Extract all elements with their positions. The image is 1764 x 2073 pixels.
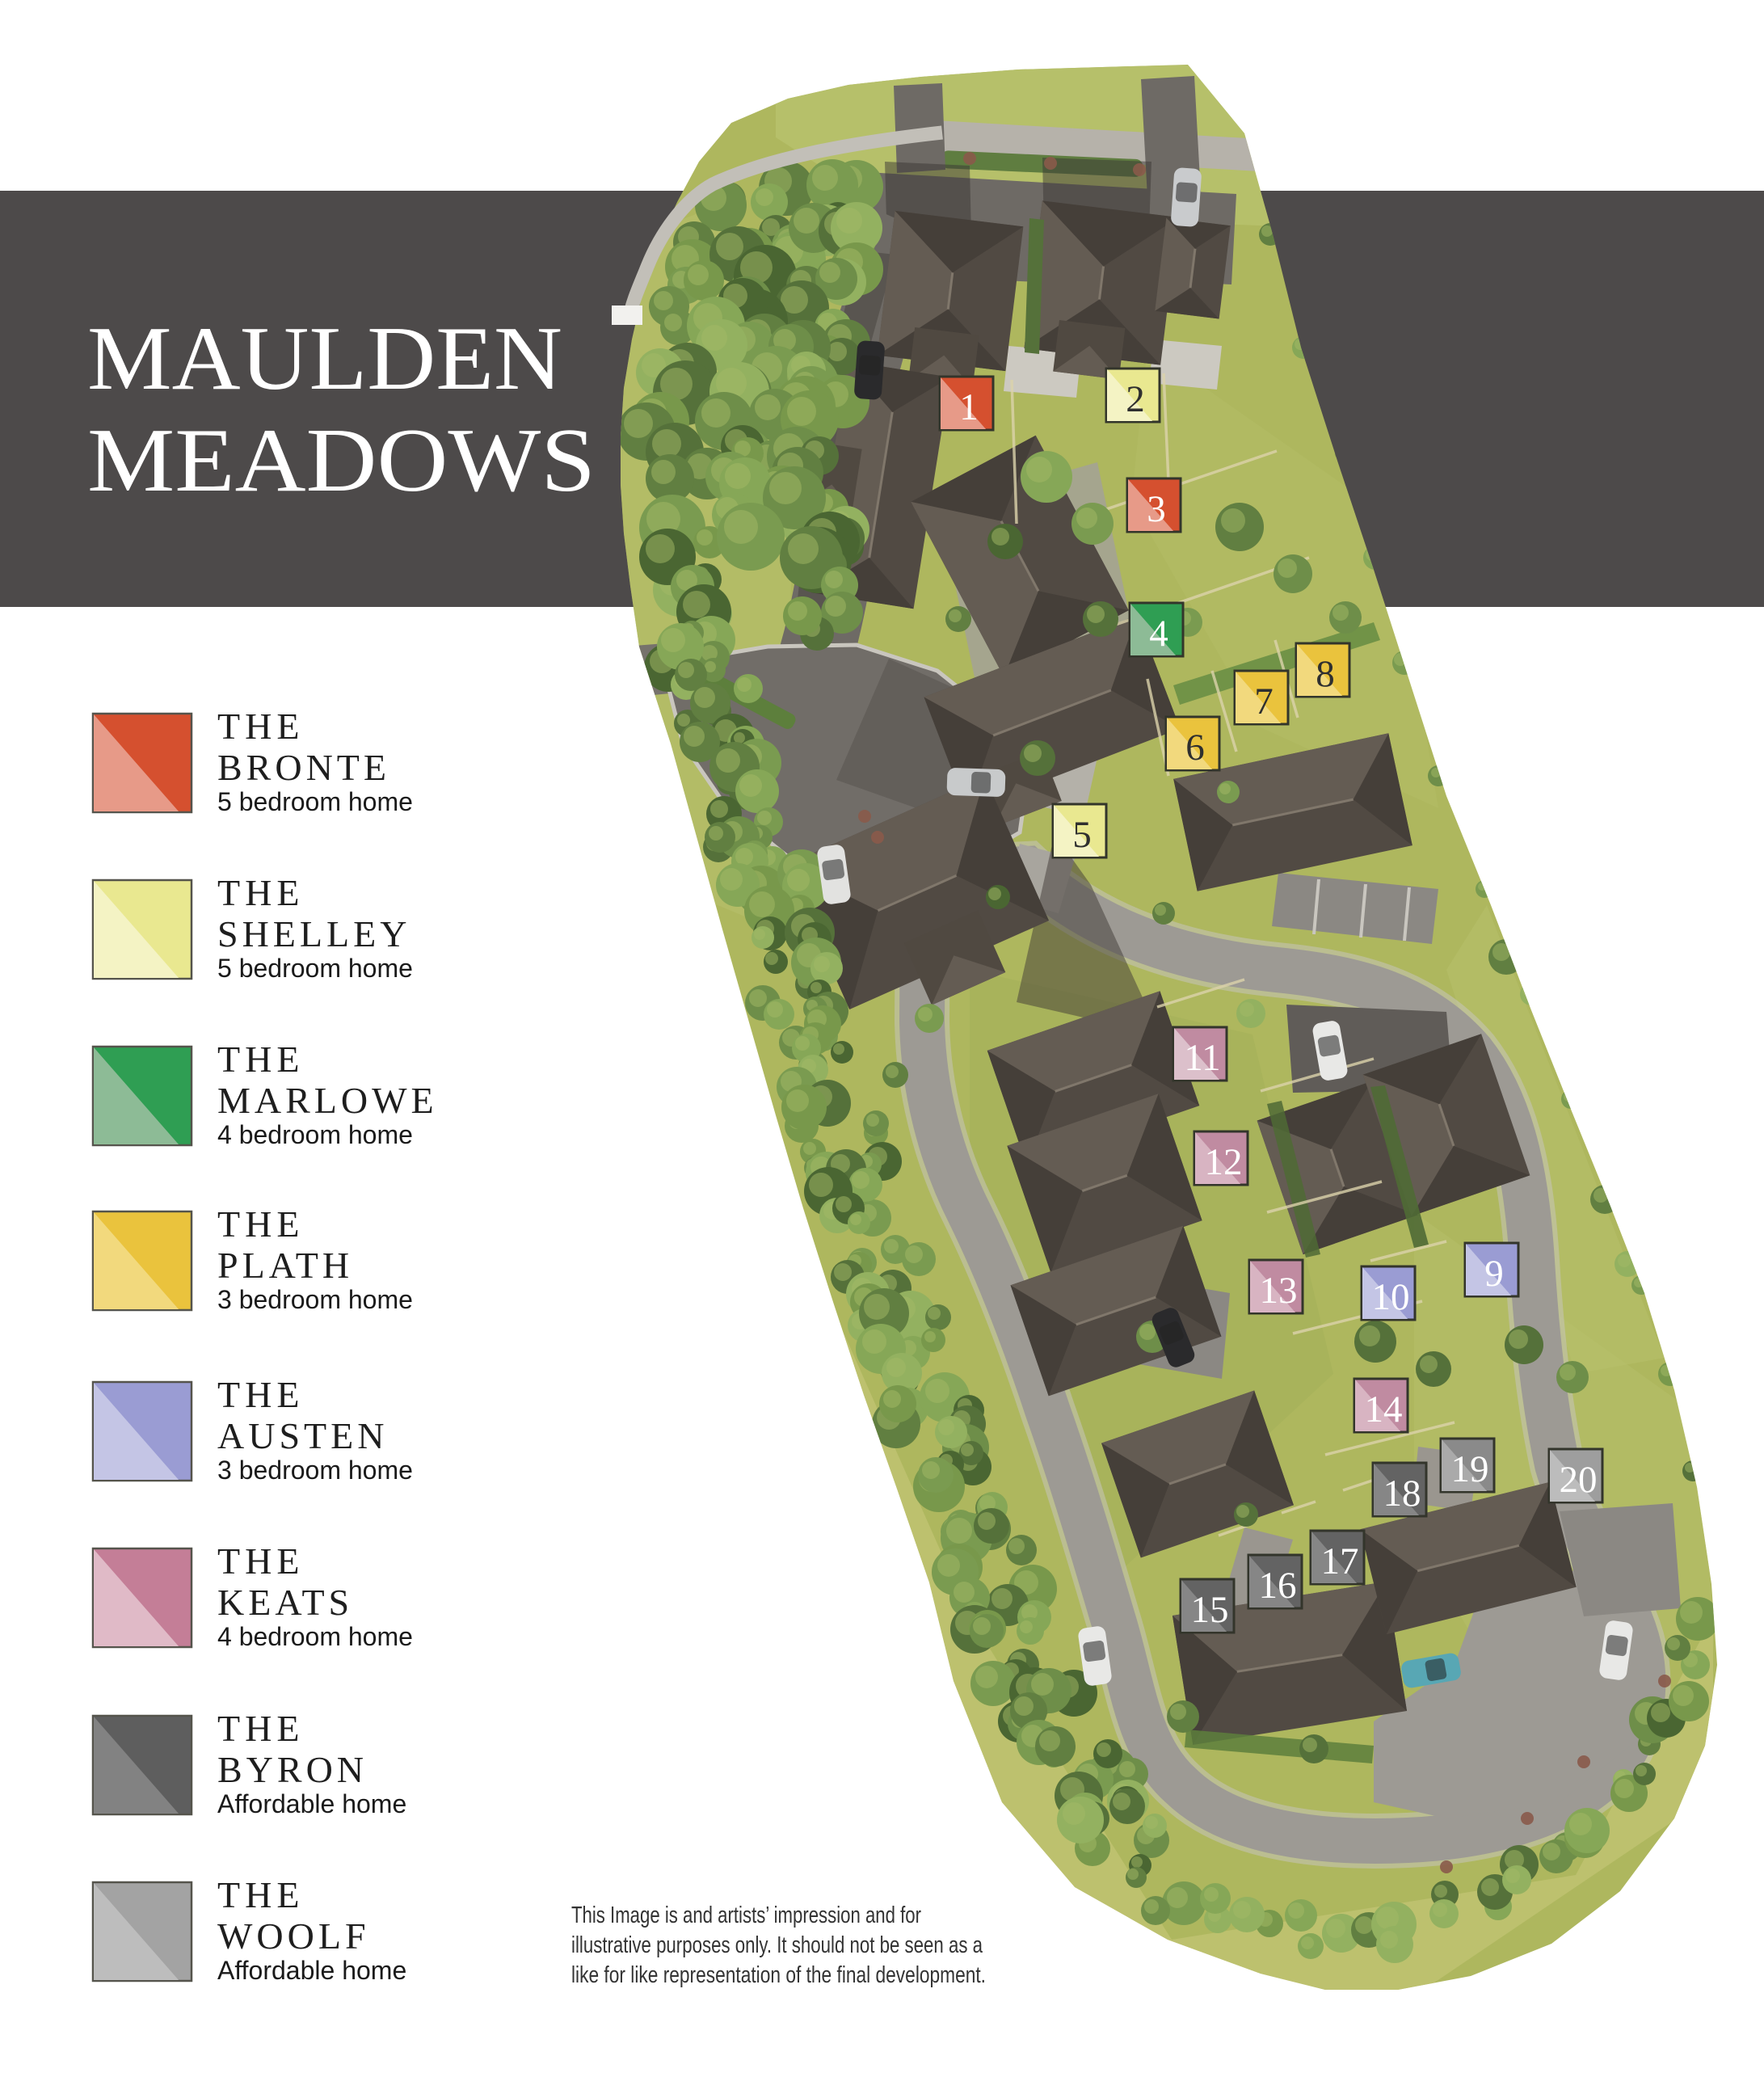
- svg-text:19: 19: [1451, 1448, 1489, 1490]
- svg-text:Affordable home: Affordable home: [217, 1956, 406, 1985]
- svg-text:1: 1: [959, 386, 979, 428]
- svg-text:15: 15: [1191, 1589, 1229, 1631]
- svg-text:AUSTEN: AUSTEN: [217, 1415, 388, 1456]
- svg-text:3 bedroom home: 3 bedroom home: [217, 1285, 413, 1314]
- svg-text:6: 6: [1185, 727, 1205, 769]
- svg-text:THE: THE: [217, 706, 304, 747]
- svg-text:MARLOWE: MARLOWE: [217, 1080, 438, 1121]
- svg-text:BRONTE: BRONTE: [217, 747, 390, 788]
- svg-text:THE: THE: [217, 1874, 304, 1915]
- svg-text:THE: THE: [217, 1374, 304, 1415]
- svg-text:5 bedroom home: 5 bedroom home: [217, 954, 413, 983]
- svg-text:20: 20: [1560, 1459, 1598, 1501]
- svg-text:MEADOWS: MEADOWS: [87, 411, 596, 511]
- svg-text:THE: THE: [217, 1203, 304, 1245]
- svg-text:17: 17: [1321, 1540, 1359, 1582]
- svg-text:PLATH: PLATH: [217, 1245, 353, 1286]
- svg-text:THE: THE: [217, 1540, 304, 1582]
- svg-text:3: 3: [1147, 488, 1166, 530]
- svg-text:2: 2: [1126, 378, 1145, 420]
- svg-text:12: 12: [1205, 1141, 1243, 1183]
- svg-text:4 bedroom home: 4 bedroom home: [217, 1622, 413, 1651]
- svg-text:18: 18: [1383, 1473, 1421, 1515]
- svg-text:4: 4: [1149, 613, 1168, 655]
- svg-text:9: 9: [1484, 1253, 1504, 1295]
- svg-text:BYRON: BYRON: [217, 1749, 368, 1790]
- svg-text:illustrative purposes only. It: illustrative purposes only. It should no…: [571, 1932, 983, 1958]
- svg-text:8: 8: [1316, 653, 1335, 695]
- svg-text:KEATS: KEATS: [217, 1582, 353, 1623]
- svg-text:MAULDEN: MAULDEN: [87, 309, 562, 409]
- svg-text:This Image is and artists’ imp: This Image is and artists’ impression an…: [571, 1902, 921, 1928]
- svg-text:THE: THE: [217, 872, 304, 913]
- svg-text:10: 10: [1372, 1276, 1410, 1318]
- svg-text:13: 13: [1260, 1270, 1298, 1312]
- svg-text:SHELLEY: SHELLEY: [217, 913, 410, 954]
- svg-text:4 bedroom home: 4 bedroom home: [217, 1120, 413, 1149]
- svg-text:5: 5: [1072, 814, 1092, 856]
- svg-text:like for like representation o: like for like representation of the fina…: [571, 1962, 986, 1988]
- svg-text:THE: THE: [217, 1708, 304, 1749]
- svg-text:14: 14: [1365, 1388, 1403, 1430]
- svg-text:WOOLF: WOOLF: [217, 1915, 370, 1957]
- svg-text:16: 16: [1259, 1565, 1297, 1607]
- svg-text:3 bedroom home: 3 bedroom home: [217, 1456, 413, 1485]
- svg-text:Affordable home: Affordable home: [217, 1789, 406, 1818]
- svg-text:7: 7: [1254, 680, 1274, 723]
- svg-text:THE: THE: [217, 1039, 304, 1080]
- svg-text:5 bedroom home: 5 bedroom home: [217, 787, 413, 816]
- svg-text:11: 11: [1184, 1037, 1220, 1079]
